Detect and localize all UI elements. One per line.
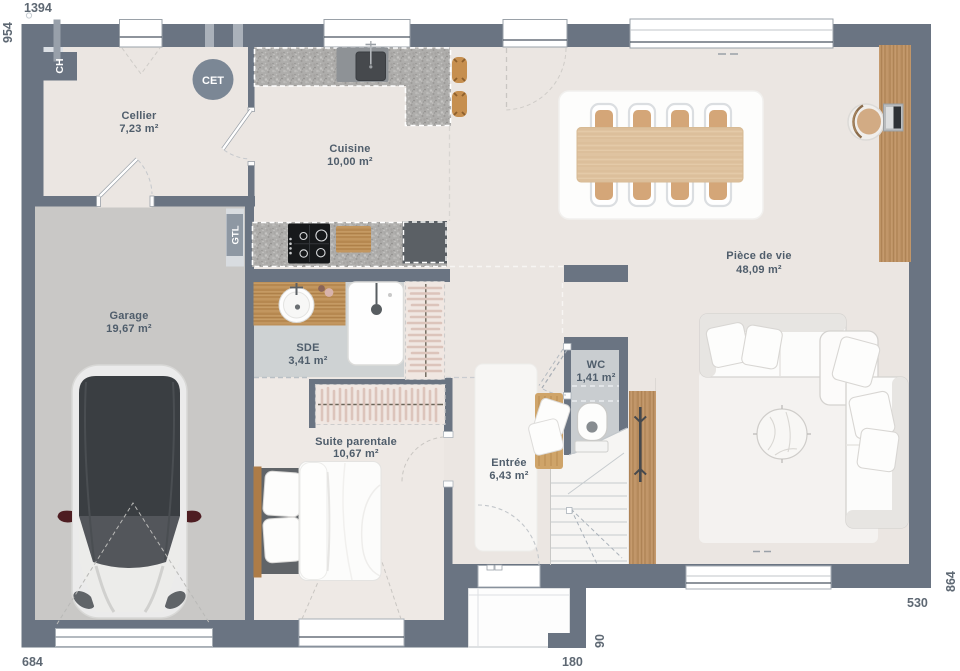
svg-text:CET: CET [202, 75, 224, 87]
svg-text:180: 180 [562, 655, 583, 669]
svg-text:7,23 m²: 7,23 m² [119, 123, 158, 135]
svg-text:19,67 m²: 19,67 m² [106, 323, 152, 335]
svg-text:WC: WC [587, 359, 606, 371]
svg-text:Suite parentale: Suite parentale [315, 436, 397, 448]
svg-text:10,00 m²: 10,00 m² [327, 156, 373, 168]
svg-text:1,41 m²: 1,41 m² [576, 372, 615, 384]
svg-text:684: 684 [22, 655, 43, 669]
svg-text:530: 530 [907, 596, 928, 610]
svg-text:6,43 m²: 6,43 m² [489, 470, 528, 482]
svg-text:Cuisine: Cuisine [329, 143, 370, 155]
svg-text:90: 90 [593, 634, 607, 648]
svg-text:SDE: SDE [296, 342, 319, 354]
svg-text:Cellier: Cellier [121, 110, 157, 122]
svg-text:864: 864 [944, 571, 958, 592]
svg-text:3,41 m²: 3,41 m² [288, 355, 327, 367]
svg-text:GTL: GTL [231, 225, 242, 244]
svg-text:Garage: Garage [109, 310, 148, 322]
svg-text:10,67 m²: 10,67 m² [333, 448, 379, 460]
svg-text:954: 954 [1, 22, 15, 43]
svg-text:48,09 m²: 48,09 m² [736, 264, 782, 276]
svg-text:Entrée: Entrée [491, 457, 526, 469]
svg-text:CH: CH [54, 58, 66, 73]
svg-text:Pièce de vie: Pièce de vie [726, 250, 791, 262]
